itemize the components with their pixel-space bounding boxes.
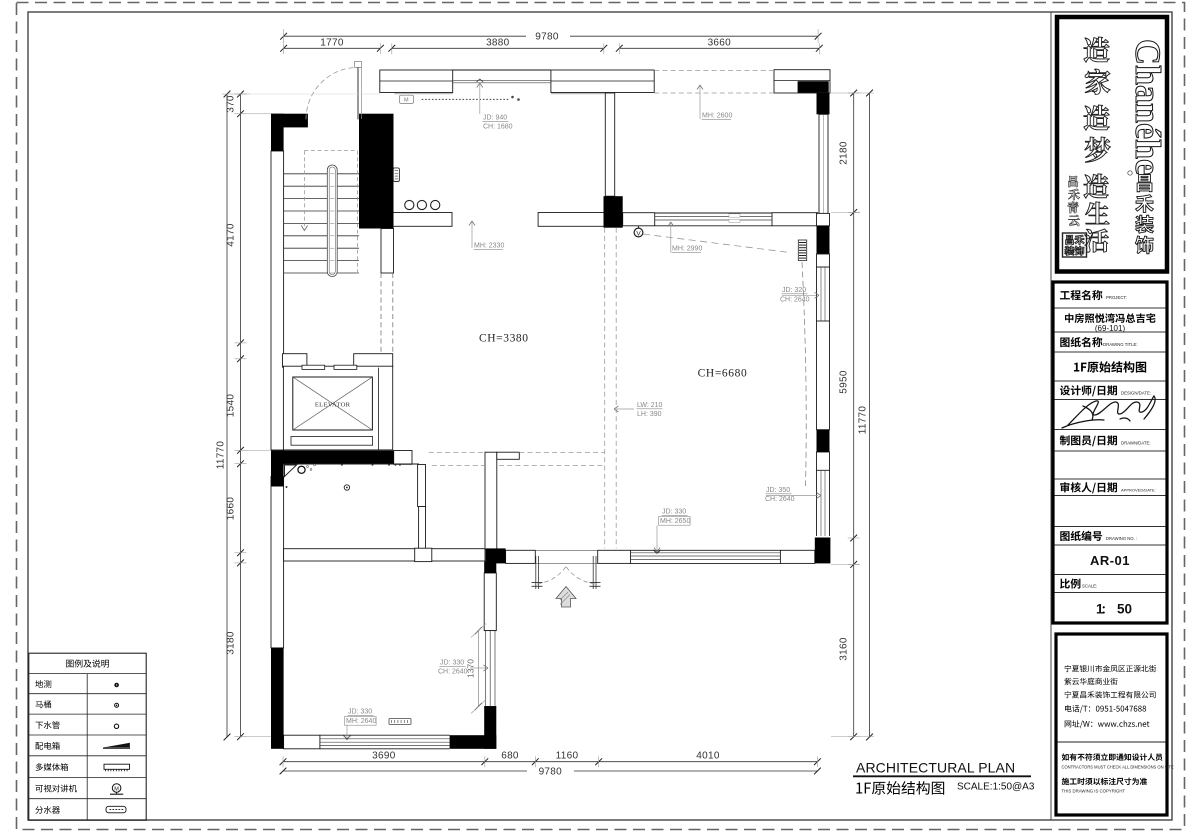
- svg-text:APPROVED/DATE:: APPROVED/DATE:: [1121, 487, 1156, 492]
- svg-text:AR-01: AR-01: [1090, 553, 1130, 568]
- svg-text:11770: 11770: [858, 406, 869, 435]
- svg-text:CH: 1680: CH: 1680: [483, 124, 513, 131]
- svg-text:MH: 2640: MH: 2640: [346, 718, 376, 725]
- svg-text:CH=6680: CH=6680: [698, 367, 748, 379]
- svg-text:5950: 5950: [839, 370, 850, 394]
- svg-text:JD: 330: JD: 330: [440, 660, 464, 667]
- svg-text:V: V: [636, 231, 641, 238]
- svg-text:2180: 2180: [839, 141, 850, 165]
- svg-text:(69-101): (69-101): [1095, 324, 1126, 333]
- svg-text:SCALE:: SCALE:: [1082, 584, 1097, 589]
- svg-text:JD: 940: JD: 940: [483, 115, 507, 122]
- svg-text:ELEVATOR: ELEVATOR: [315, 401, 351, 408]
- svg-text:3660: 3660: [708, 38, 732, 49]
- svg-text:M: M: [114, 786, 119, 792]
- svg-text:1: 1: [1096, 602, 1104, 617]
- svg-text:9780: 9780: [535, 32, 559, 43]
- svg-text:1160: 1160: [556, 751, 579, 762]
- svg-text:CH: 2640: CH: 2640: [765, 496, 795, 503]
- svg-text:CH: 2640: CH: 2640: [780, 297, 810, 304]
- svg-text:ARCHITECTURAL PLAN: ARCHITECTURAL PLAN: [856, 760, 1015, 776]
- svg-text:JD: 320: JD: 320: [782, 287, 806, 294]
- svg-text:50: 50: [1117, 602, 1132, 617]
- svg-text:JD: 330: JD: 330: [662, 509, 686, 516]
- svg-text:9780: 9780: [539, 767, 563, 778]
- svg-text:11770: 11770: [216, 441, 227, 470]
- svg-text:SCALE:1:50@A3: SCALE:1:50@A3: [957, 782, 1035, 793]
- svg-text:3690: 3690: [372, 751, 396, 762]
- svg-text:CH=3380: CH=3380: [479, 332, 529, 344]
- svg-text:DESIGN/DATE:: DESIGN/DATE:: [1121, 390, 1151, 395]
- svg-text:JD: 330: JD: 330: [348, 709, 372, 716]
- svg-text:THIS DRAWING IS COPYRIGHT: THIS DRAWING IS COPYRIGHT: [1062, 788, 1126, 793]
- svg-text:MH: 2650: MH: 2650: [660, 518, 690, 525]
- svg-text:M: M: [404, 97, 409, 103]
- svg-text:PROJECT:: PROJECT:: [1106, 295, 1127, 300]
- svg-text:680: 680: [501, 751, 519, 762]
- svg-text:Chanéhe: Chanéhe: [1128, 39, 1168, 175]
- svg-text:1370: 1370: [466, 659, 476, 678]
- svg-text:DRAWING NO. :: DRAWING NO. :: [1106, 536, 1137, 541]
- svg-text:MH: 2990: MH: 2990: [672, 246, 702, 253]
- svg-text:MH: 2330: MH: 2330: [474, 243, 504, 250]
- svg-text:3880: 3880: [486, 38, 510, 49]
- svg-text:DRAWN/DATE:: DRAWN/DATE:: [1121, 440, 1151, 445]
- svg-text:MH: 2600: MH: 2600: [702, 113, 732, 120]
- svg-text:DRAWING TITLE:: DRAWING TITLE:: [1103, 342, 1138, 347]
- svg-text:3160: 3160: [839, 637, 850, 661]
- svg-text:LW: 210: LW: 210: [637, 402, 663, 409]
- svg-text:CH: 2640: CH: 2640: [438, 669, 468, 676]
- svg-text:1770: 1770: [320, 38, 344, 49]
- svg-text:JD: 350: JD: 350: [766, 487, 790, 494]
- svg-text:4010: 4010: [696, 751, 720, 762]
- svg-text:CONTRACTORS MUST CHECK ALL DIM: CONTRACTORS MUST CHECK ALL DIMENSIONS ON…: [1062, 764, 1175, 769]
- svg-text:LH: 390: LH: 390: [637, 411, 662, 418]
